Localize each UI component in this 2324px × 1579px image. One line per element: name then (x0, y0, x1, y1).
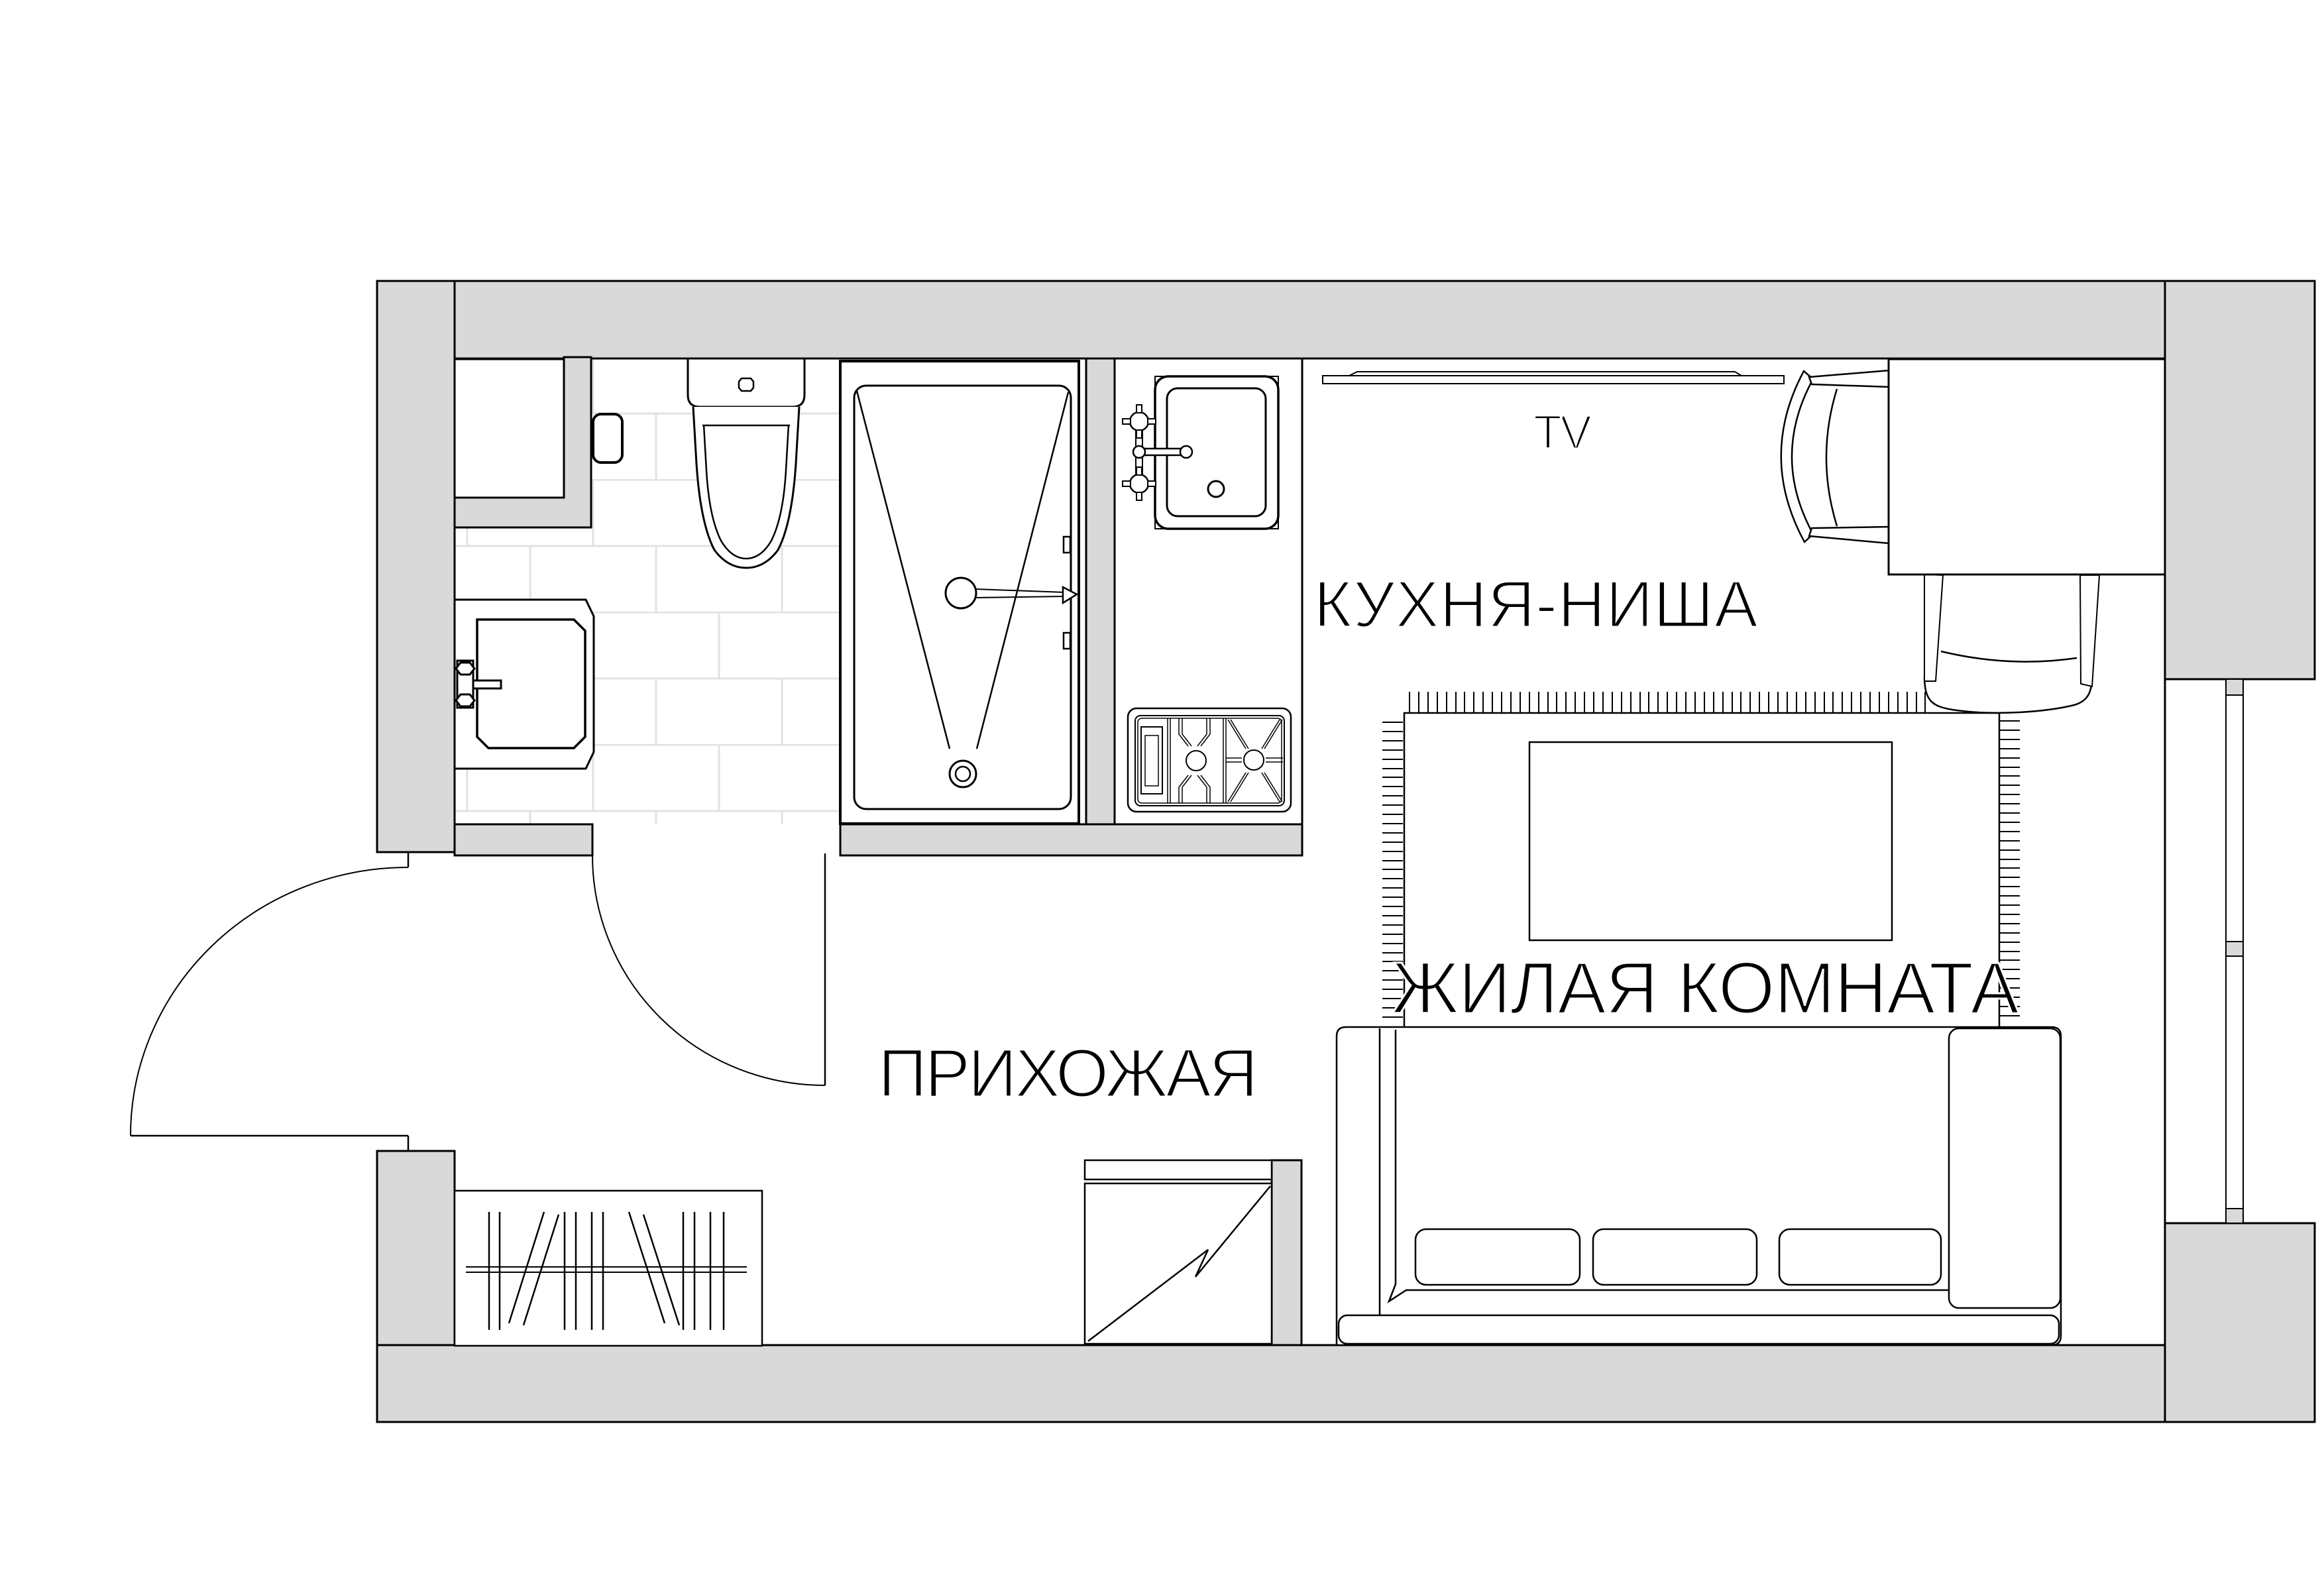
svg-text:TV: TV (1533, 406, 1592, 459)
svg-text:ПРИХОЖАЯ: ПРИХОЖАЯ (878, 1035, 1256, 1111)
svg-text:КУХНЯ-НИША: КУХНЯ-НИША (1313, 567, 1758, 641)
svg-text:ЖИЛАЯ КОМНАТА: ЖИЛАЯ КОМНАТА (1392, 948, 2019, 1029)
